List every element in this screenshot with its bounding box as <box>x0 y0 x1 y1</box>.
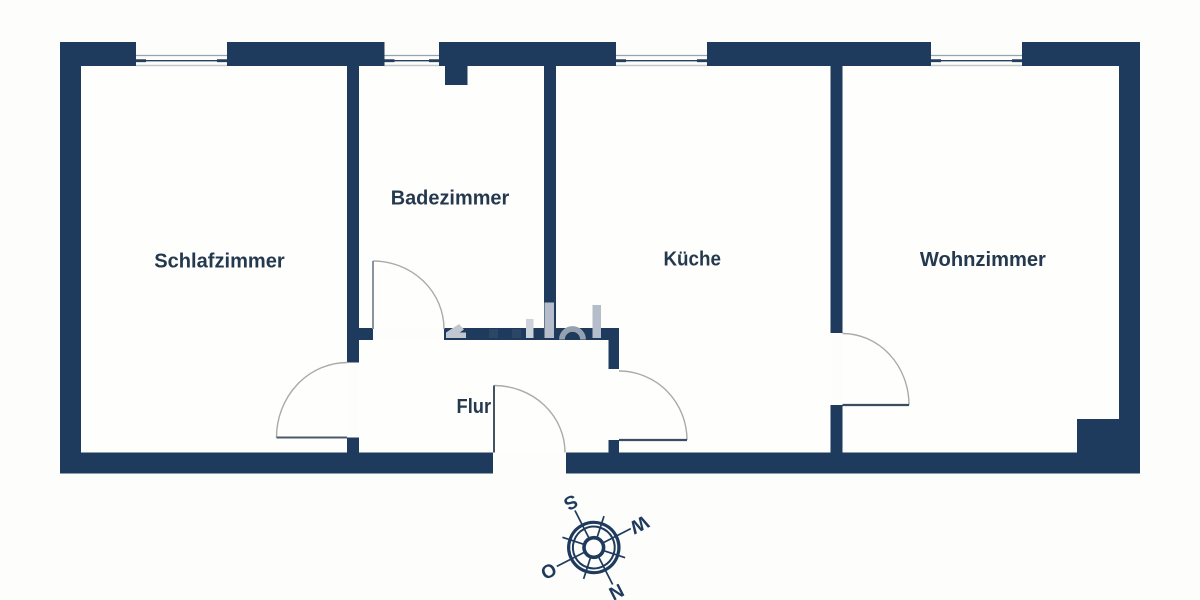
svg-text:Flur: Flur <box>457 395 492 418</box>
svg-text:Küche: Küche <box>663 248 721 271</box>
svg-text:Schlafzimmer: Schlafzimmer <box>154 249 285 272</box>
svg-text:Wohnzimmer: Wohnzimmer <box>920 248 1046 271</box>
svg-text:Badezimmer: Badezimmer <box>391 187 510 210</box>
